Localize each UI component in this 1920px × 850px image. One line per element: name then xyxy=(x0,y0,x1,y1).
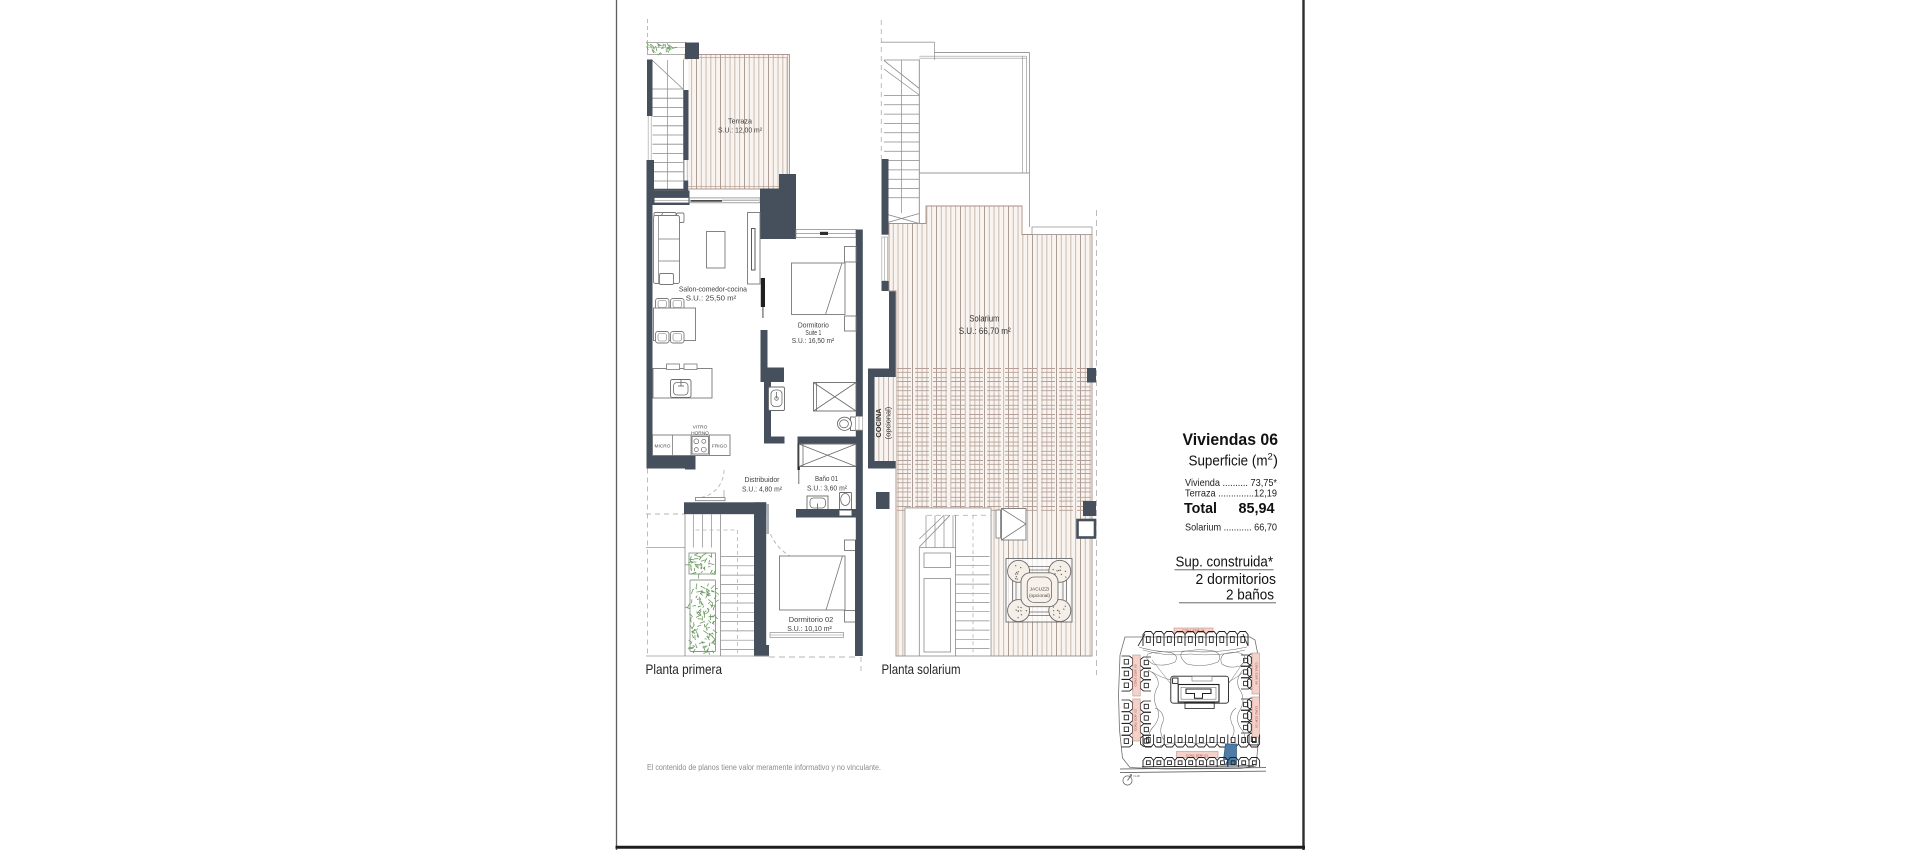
svg-text:85,94: 85,94 xyxy=(1239,501,1275,517)
svg-text:S.U.: 25,50 m²: S.U.: 25,50 m² xyxy=(686,294,737,303)
svg-text:Planta solarium: Planta solarium xyxy=(882,662,961,677)
svg-text:MICRO: MICRO xyxy=(655,444,671,450)
svg-text:N-18: N-18 xyxy=(1134,774,1141,778)
svg-text:S.U.: 3,60 m²: S.U.: 3,60 m² xyxy=(807,484,848,493)
svg-text:VITRO: VITRO xyxy=(693,425,708,431)
svg-text:HORNO: HORNO xyxy=(691,430,709,436)
svg-text:Total: Total xyxy=(1184,501,1217,517)
svg-text:(opcional): (opcional) xyxy=(1029,593,1050,599)
svg-text:Solarium: Solarium xyxy=(969,314,999,324)
svg-text:Viviendas 06: Viviendas 06 xyxy=(1183,431,1279,449)
svg-text:S.U.: 4,80 m²: S.U.: 4,80 m² xyxy=(742,485,783,494)
svg-text:2 dormitorios: 2 dormitorios xyxy=(1196,572,1277,588)
svg-text:Planta primera: Planta primera xyxy=(646,662,723,677)
svg-text:Distribuidor: Distribuidor xyxy=(745,475,781,484)
svg-text:Salon-comedor-cocina: Salon-comedor-cocina xyxy=(679,285,747,294)
svg-text:S.U.: 16,50 m²: S.U.: 16,50 m² xyxy=(792,336,835,345)
svg-text:S.U.: 12,00 m²: S.U.: 12,00 m² xyxy=(718,126,763,135)
svg-text:El contenido de planos tiene v: El contenido de planos tiene valor meram… xyxy=(647,763,881,772)
svg-text:CONJ. EDIF. 06: CONJ. EDIF. 06 xyxy=(1255,662,1259,684)
svg-text:CONJ. EDIF. 05: CONJ. EDIF. 05 xyxy=(1255,706,1259,728)
svg-text:): ) xyxy=(1273,453,1278,470)
svg-text:Superficie (m: Superficie (m xyxy=(1189,453,1268,470)
svg-text:(opcional): (opcional) xyxy=(884,407,893,439)
svg-text:S.U.: 10,10 m²: S.U.: 10,10 m² xyxy=(787,624,832,633)
svg-text:CONJ. EDIF. 01: CONJ. EDIF. 01 xyxy=(1186,753,1208,757)
svg-text:Baño 01: Baño 01 xyxy=(815,474,838,483)
svg-text:JACUZZI: JACUZZI xyxy=(1030,587,1050,593)
svg-text:2 baños: 2 baños xyxy=(1226,588,1274,604)
svg-text:FRIGO: FRIGO xyxy=(712,444,727,450)
svg-text:CONJ. EDIF. 03: CONJ. EDIF. 03 xyxy=(1134,664,1138,686)
svg-text:Dormitorio 02: Dormitorio 02 xyxy=(789,615,834,624)
svg-text:CONJ. EDIF. 02: CONJ. EDIF. 02 xyxy=(1134,709,1138,731)
svg-text:Terraza ..............12,19: Terraza ..............12,19 xyxy=(1185,489,1277,500)
svg-text:Vivienda .......... 73,75*: Vivienda .......... 73,75* xyxy=(1185,478,1277,489)
svg-text:Sup. construida*: Sup. construida* xyxy=(1176,554,1274,571)
svg-text:Terraza: Terraza xyxy=(728,117,752,126)
svg-text:COCINA: COCINA xyxy=(874,408,883,438)
svg-text:S.U.: 66,70 m²: S.U.: 66,70 m² xyxy=(959,326,1011,336)
svg-text:2: 2 xyxy=(1268,452,1273,463)
svg-text:Solarium ........... 66,70: Solarium ........... 66,70 xyxy=(1185,523,1277,534)
